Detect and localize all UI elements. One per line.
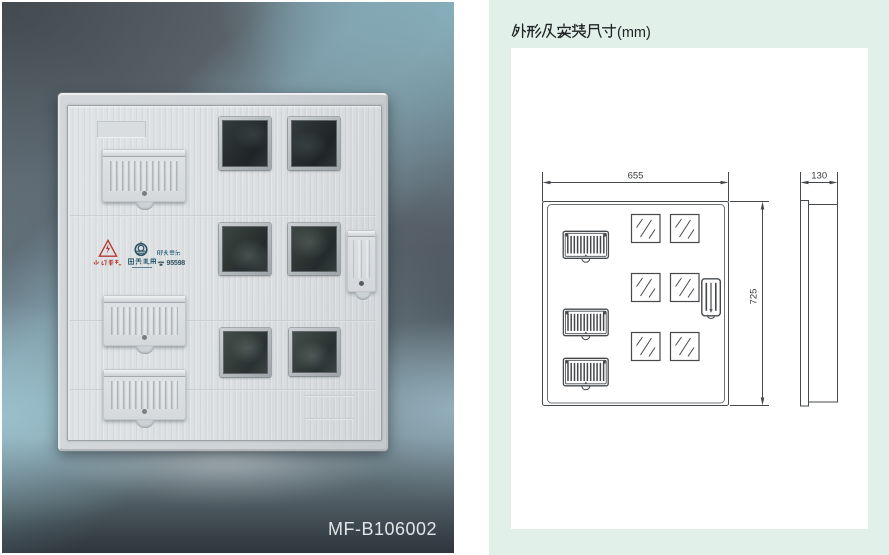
svg-text:725: 725 bbox=[749, 289, 760, 305]
svg-text:655: 655 bbox=[628, 171, 644, 182]
svg-text:130: 130 bbox=[811, 171, 827, 182]
svg-text:(mm): (mm) bbox=[617, 25, 651, 41]
